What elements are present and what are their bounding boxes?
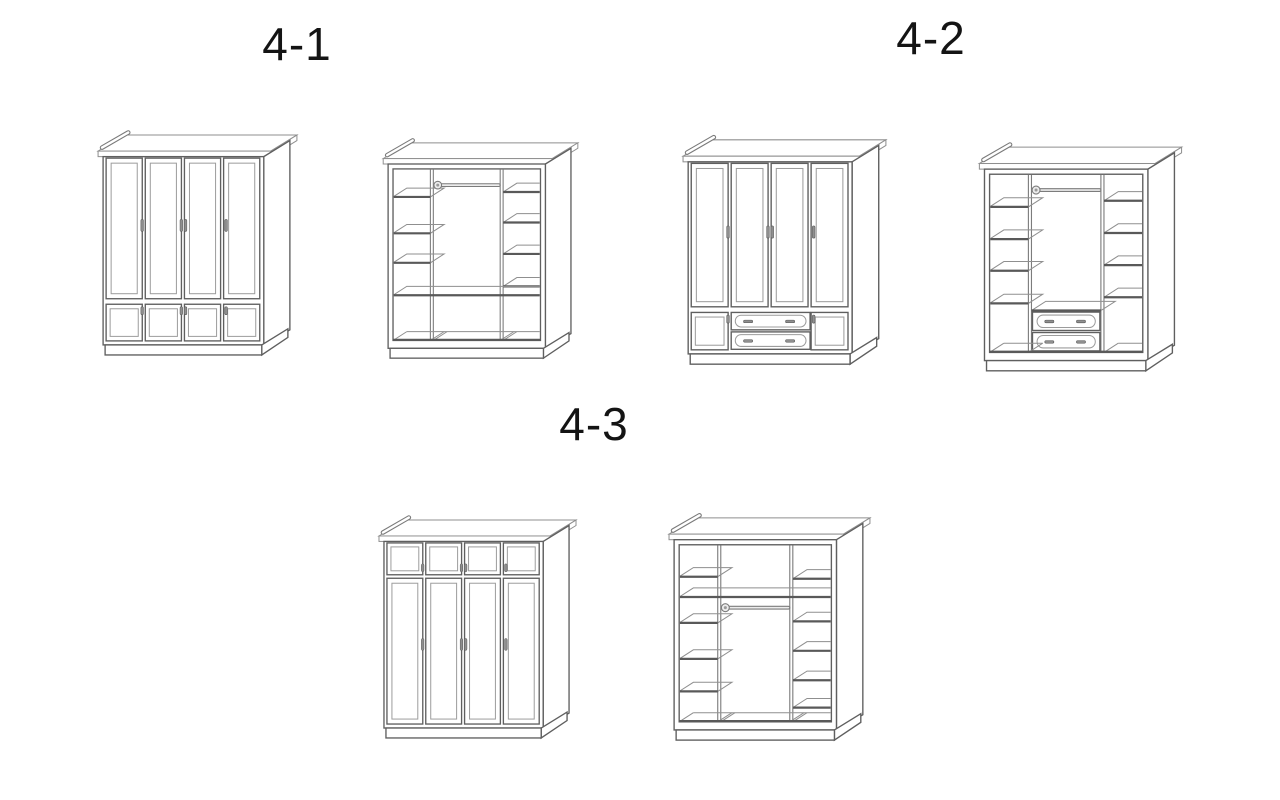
group-label-4-2: 4-2 — [896, 16, 965, 60]
cabinet-shell — [383, 140, 578, 358]
wardrobe-4-1-interior-drawing — [381, 135, 582, 367]
cabinet-shell — [379, 518, 576, 738]
wardrobe-4-1-exterior-drawing — [96, 127, 301, 364]
wardrobe-4-2-exterior-drawing — [681, 131, 890, 374]
cabinet-shell — [669, 515, 870, 740]
group-label-4-3: 4-3 — [559, 402, 628, 446]
wardrobe-4-2-interior-drawing — [974, 139, 1189, 380]
wardrobe-4-3-exterior-drawing — [377, 509, 580, 750]
group-label-4-1: 4-1 — [262, 22, 331, 66]
wardrobe-diagram-page: 4-1 4-2 4-3 — [0, 0, 1280, 800]
cabinet-shell — [98, 133, 297, 355]
wardrobe-4-3-interior-drawing — [667, 509, 874, 750]
